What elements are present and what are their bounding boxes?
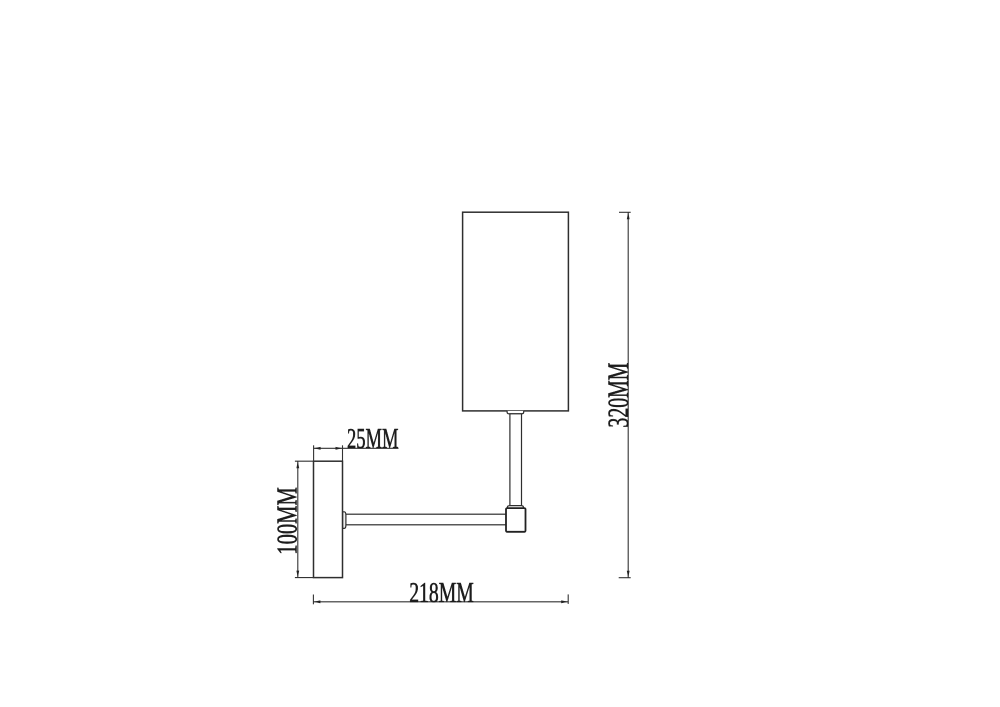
- svg-text:25MM: 25MM: [347, 424, 399, 455]
- svg-text:218MM: 218MM: [409, 578, 474, 609]
- svg-text:100MM: 100MM: [273, 487, 304, 555]
- svg-text:320MM: 320MM: [603, 363, 635, 428]
